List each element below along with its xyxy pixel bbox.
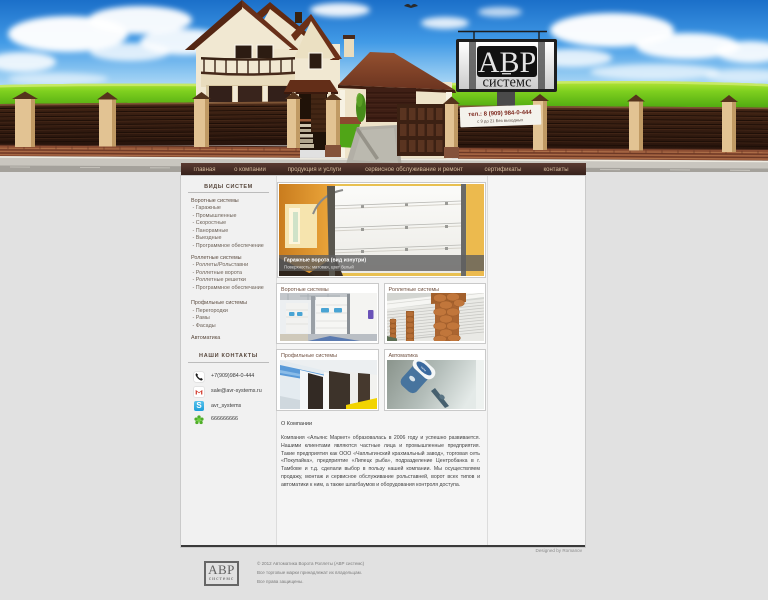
svg-text:Поверхность: матовая, цвет бел: Поверхность: матовая, цвет белый	[284, 265, 354, 270]
svg-text:системс: системс	[482, 75, 531, 91]
svg-text:Гаражные ворота (вид изнутри): Гаражные ворота (вид изнутри)	[284, 258, 366, 264]
